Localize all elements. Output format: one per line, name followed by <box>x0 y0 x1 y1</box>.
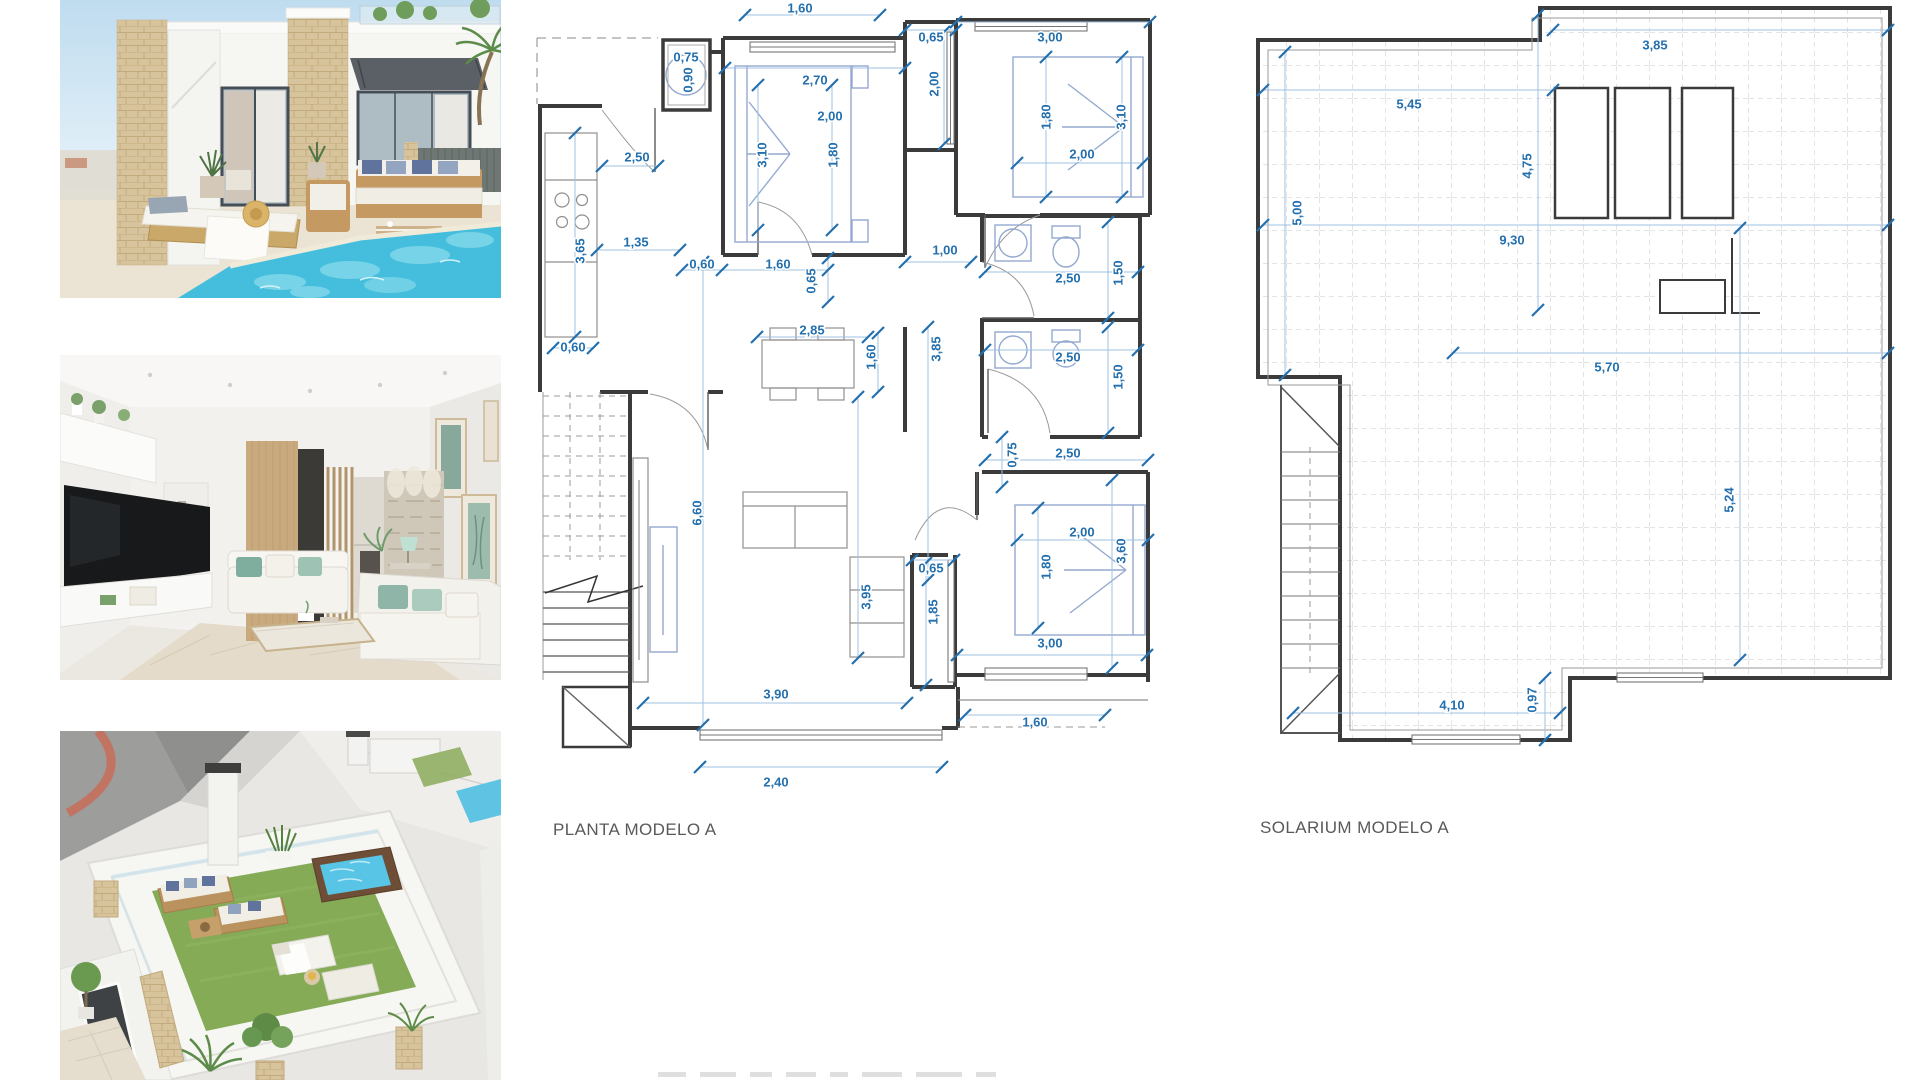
dimension-label: 2,50 <box>1055 350 1080 365</box>
dimension-label: 3,85 <box>1642 38 1667 53</box>
dimension-label: 1,80 <box>1039 104 1054 129</box>
dimension-label: 1,50 <box>1111 364 1126 389</box>
dimension-label: 2,40 <box>763 775 788 790</box>
photo-rooftop-solarium <box>60 731 501 1080</box>
roof-openings <box>1555 88 1733 218</box>
dimension-label: 4,10 <box>1439 698 1464 713</box>
dining-table <box>762 328 854 400</box>
dimension-label: 5,00 <box>1290 200 1305 225</box>
dimension-label: 2,00 <box>1069 147 1094 162</box>
dimension-label: 5,70 <box>1594 360 1619 375</box>
dimension-label: 3,10 <box>755 142 770 167</box>
dimension-label: 5,24 <box>1722 487 1737 513</box>
dimension-label: 1,60 <box>765 257 790 272</box>
chimney <box>208 769 238 865</box>
dimension-label: 3,85 <box>929 336 944 361</box>
kitchen-units <box>545 133 597 337</box>
dimension-label: 0,60 <box>689 257 714 272</box>
dimension-label: 1,60 <box>864 344 879 369</box>
dimension-label: 2,85 <box>799 323 824 338</box>
dimension-label: 0,65 <box>918 30 943 45</box>
floor-plan-title: PLANTA MODELO A <box>553 820 716 840</box>
brochure-page: 1,600,653,000,750,902,702,002,003,101,80… <box>0 0 1920 1080</box>
dimension-label: 1,80 <box>1039 554 1054 579</box>
dimension-label: 2,50 <box>1055 271 1080 286</box>
dimension-label: 2,00 <box>817 109 842 124</box>
dimension-label: 3,90 <box>763 687 788 702</box>
roof-overhang-dashes <box>537 38 658 104</box>
sliding-glass-door <box>222 88 288 205</box>
dimension-label: 0,75 <box>673 50 698 65</box>
photo-living-room <box>60 355 501 680</box>
dimension-label: 0,65 <box>918 561 943 576</box>
dimension-label: 0,90 <box>681 67 696 92</box>
dimension-label: 0,60 <box>560 340 585 355</box>
floor-plan-solarium-modelo-a: 3,855,454,755,009,305,705,244,100,97 <box>1250 0 1900 760</box>
solarium-stairs <box>1281 385 1340 733</box>
villa-pool-illustration <box>60 0 501 298</box>
dimension-label: 1,60 <box>1022 715 1047 730</box>
floor-plan-planta-modelo-a: 1,600,653,000,750,902,702,002,003,101,80… <box>535 0 1165 800</box>
dimension-label: 3,10 <box>1114 104 1129 129</box>
dimension-label: 1,85 <box>926 599 941 624</box>
dimension-label: 3,60 <box>1114 538 1129 563</box>
dimension-label: 1,35 <box>623 235 648 250</box>
furniture <box>545 45 1148 727</box>
sofa-center <box>228 551 348 613</box>
dimension-label: 5,45 <box>1396 97 1421 112</box>
dimension-label: 3,00 <box>1037 30 1062 45</box>
dimension-label: 1,60 <box>787 1 812 16</box>
chimney-box <box>1660 280 1725 313</box>
dimension-label: 3,00 <box>1037 636 1062 651</box>
solarium-plan-title: SOLARIUM MODELO A <box>1260 818 1449 838</box>
dimension-label: 1,00 <box>932 243 957 258</box>
dimension-label: 3,65 <box>573 238 588 263</box>
ceiling <box>60 355 501 407</box>
dimension-label: 2,50 <box>624 150 649 165</box>
dimension-label: 1,50 <box>1111 260 1126 285</box>
sofa <box>743 492 847 548</box>
dimension-label: 2,50 <box>1055 446 1080 461</box>
dimension-label: 9,30 <box>1499 233 1524 248</box>
living-room-illustration <box>60 355 501 680</box>
dimension-label: 1,80 <box>826 142 841 167</box>
bathroom-fixtures <box>995 225 1080 368</box>
dimension-label: 2,70 <box>802 73 827 88</box>
dimension-label: 6,60 <box>690 500 705 525</box>
dimension-label: 0,75 <box>1005 442 1020 467</box>
dimension-label: 2,00 <box>927 71 942 96</box>
rooftop-illustration <box>60 731 501 1080</box>
dimension-label: 0,65 <box>804 268 819 293</box>
dimension-label: 4,75 <box>1520 153 1535 178</box>
photo-villa-pool <box>60 0 501 298</box>
dimension-label: 0,97 <box>1525 687 1540 712</box>
dimension-label: 3,95 <box>859 584 874 609</box>
cropped-text-fragment <box>658 1072 996 1077</box>
dimension-label: 2,00 <box>1069 525 1094 540</box>
sideboard <box>633 458 648 682</box>
sofa-right <box>358 573 501 665</box>
